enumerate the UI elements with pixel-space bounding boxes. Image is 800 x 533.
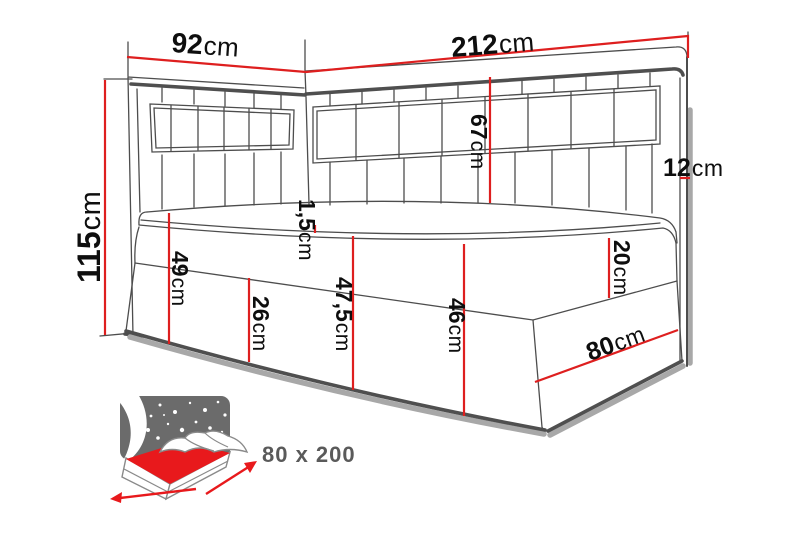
left-headboard-lower-stitches	[162, 152, 281, 209]
left-headboard-inner-edge	[137, 89, 140, 212]
dim-47-5-label: 47,5cm	[331, 277, 357, 352]
dim-115-label: 115cm	[71, 191, 107, 283]
bed-size-icon: 80 x 200	[110, 394, 356, 503]
dim-67-label: 67cm	[466, 114, 492, 170]
dim-80-label: 80cm	[582, 320, 648, 367]
product-dimension-diagram: 92cm 212cm 115cm 67cm 12cm 1,5cm 49cm 26…	[0, 0, 800, 533]
mattress-right-face-edge	[676, 243, 677, 281]
mattress-base-separation	[135, 263, 677, 320]
headboard-top-edge	[306, 69, 683, 94]
base-front-right-corner	[533, 320, 548, 431]
corner-edge	[305, 71, 306, 96]
base-bottom-foot-edge	[548, 361, 682, 431]
mattress-back-edge	[147, 201, 677, 243]
left-panel-inner	[154, 108, 290, 148]
mattress-left-corner	[139, 212, 147, 225]
left-headboard-top-edge	[131, 84, 305, 95]
dim-46-label: 46cm	[444, 298, 470, 354]
back-headboard	[305, 47, 690, 366]
bed-outline	[125, 47, 690, 435]
corner-seam	[306, 97, 309, 204]
icon-length-arrowhead	[244, 461, 257, 473]
icon-width-arrowhead	[110, 492, 122, 503]
mattress	[135, 201, 677, 320]
icon-size-label: 80 x 200	[262, 442, 356, 467]
dim-26-label: 26cm	[248, 296, 274, 352]
mattress-left-face-edge	[135, 227, 139, 263]
base-left-edge	[126, 263, 135, 331]
dim-12-label: 12cm	[663, 154, 723, 182]
dim-1-5-label: 1,5cm	[294, 199, 320, 261]
dim-20-label: 20cm	[609, 240, 635, 296]
dim-49-label: 49cm	[167, 251, 193, 307]
bed-diagram-svg: 92cm 212cm 115cm 67cm 12cm 1,5cm 49cm 26…	[0, 0, 800, 533]
dim-92-label: 92cm	[171, 27, 241, 63]
